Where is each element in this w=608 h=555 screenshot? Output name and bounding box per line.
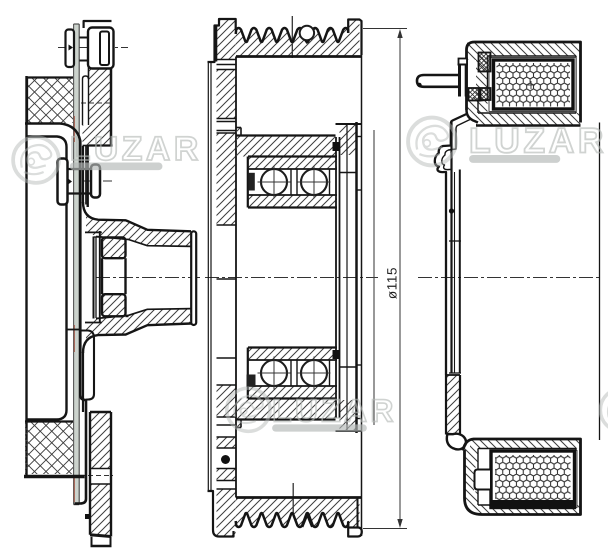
svg-text:LUZAR: LUZAR	[469, 121, 607, 161]
svg-text:ø115: ø115	[385, 267, 400, 299]
svg-text:LUZAR: LUZAR	[272, 393, 397, 429]
svg-text:LUZAR: LUZAR	[70, 129, 202, 167]
